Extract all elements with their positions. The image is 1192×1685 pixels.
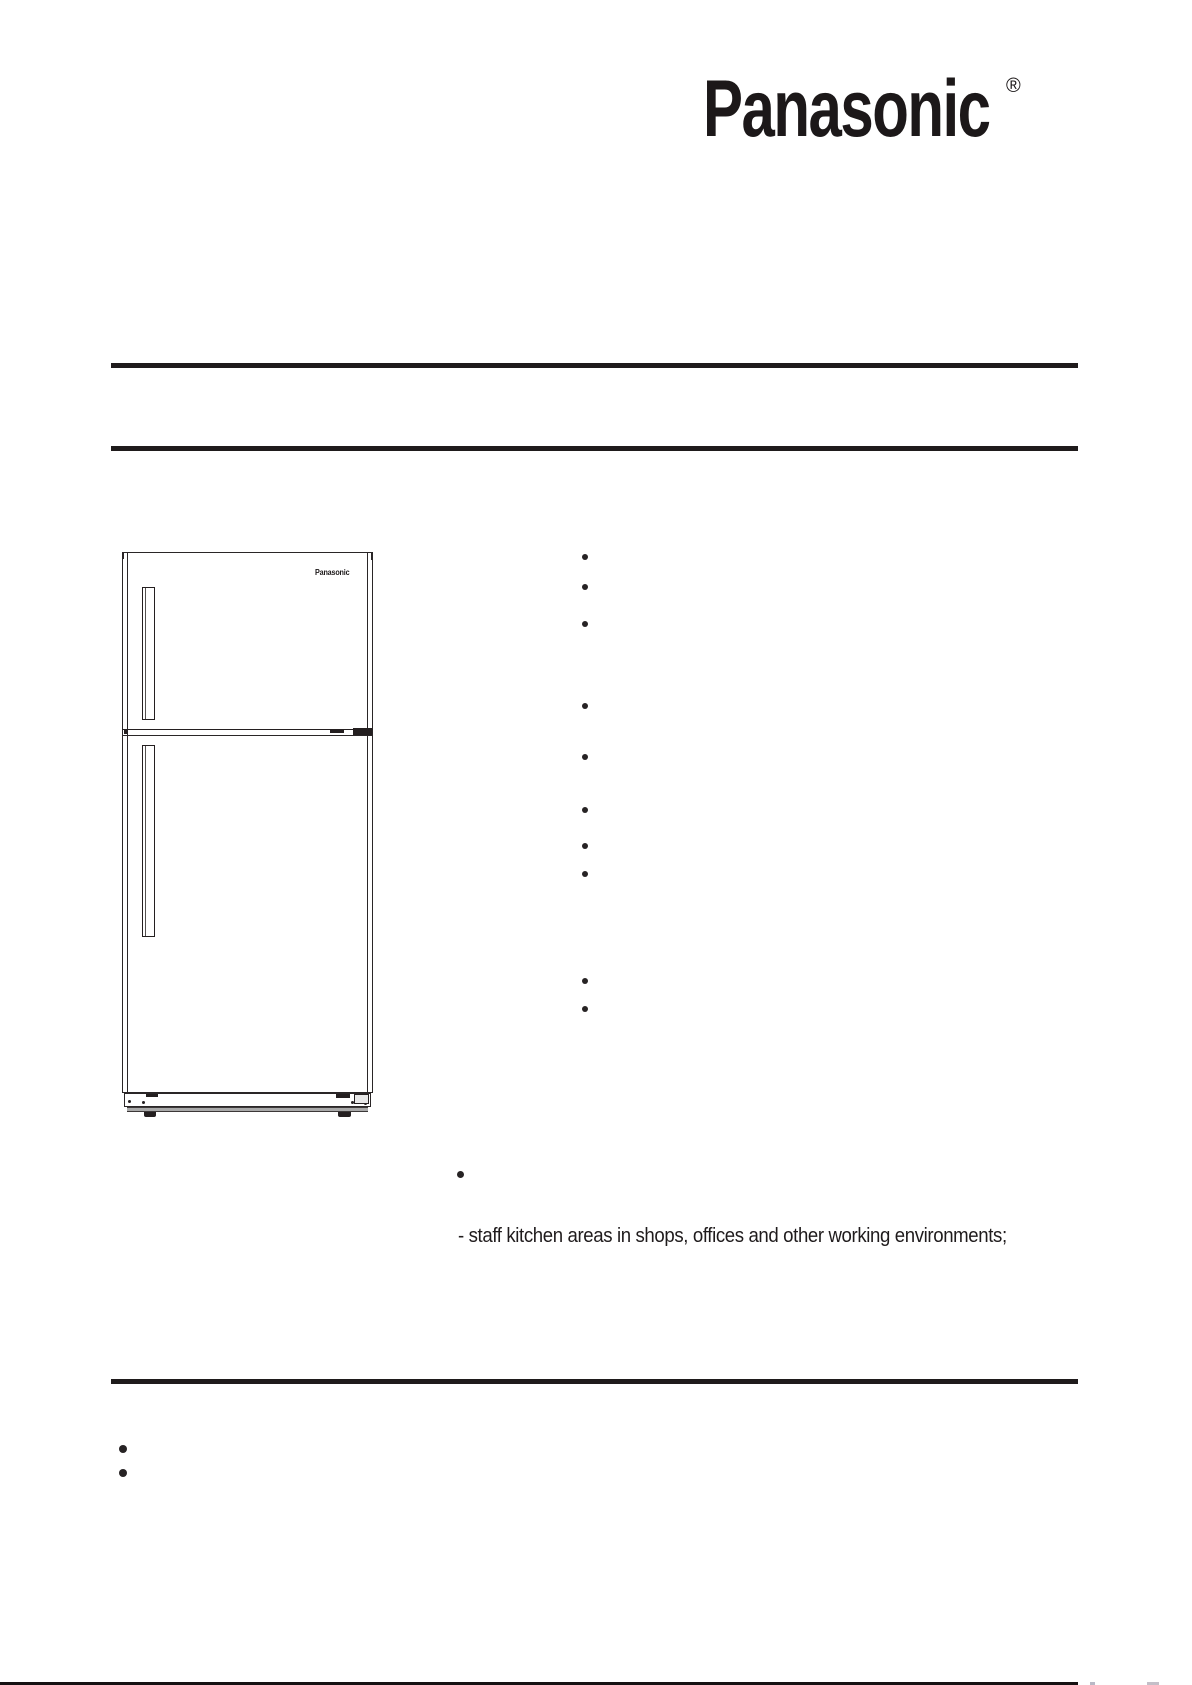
bullet-icon <box>582 843 588 849</box>
base-screw <box>128 1100 131 1103</box>
base-hinge-detail <box>336 1094 350 1098</box>
kick-strip <box>127 1107 368 1112</box>
handle-inner-line <box>145 588 146 719</box>
section-rule-bottom <box>111 1379 1078 1384</box>
cabinet-side-line-left <box>127 552 128 1093</box>
bullet-icon <box>457 1171 464 1178</box>
base-hinge-bracket <box>354 1094 369 1104</box>
registered-trademark-icon: ® <box>1006 76 1021 96</box>
panasonic-logo: Panasonic <box>703 69 990 150</box>
bullet-icon <box>582 807 588 813</box>
bullet-icon <box>582 871 588 877</box>
top-right-hinge-tick <box>371 553 373 560</box>
cabinet-outline <box>122 552 373 1093</box>
bullet-icon <box>119 1469 127 1477</box>
bullet-icon <box>119 1445 127 1453</box>
base-screw <box>142 1101 145 1104</box>
door-divider-line <box>122 735 373 736</box>
manual-page: Panasonic ® Panasonic <box>0 0 1192 1685</box>
bullet-icon <box>582 621 588 627</box>
title-rule-bottom <box>111 446 1078 451</box>
base-detail-left <box>146 1094 158 1097</box>
fridge-brand-label: Panasonic <box>315 568 349 577</box>
refrigerator-door-handle <box>142 745 155 937</box>
bullet-icon <box>582 978 588 984</box>
cabinet-side-line-right <box>367 552 368 1093</box>
refrigerator-illustration: Panasonic <box>122 552 373 1118</box>
divider-hinge-block <box>353 728 372 735</box>
divider-detail-left <box>124 730 128 734</box>
freezer-door-handle <box>142 587 155 720</box>
bullet-icon <box>582 554 588 560</box>
right-foot <box>338 1112 351 1117</box>
divider-hinge-detail <box>330 730 344 733</box>
bullet-icon <box>582 754 588 760</box>
usage-note-text: - staff kitchen areas in shops, offices … <box>458 1225 1007 1248</box>
left-foot <box>144 1112 156 1117</box>
bullet-icon <box>582 1006 588 1012</box>
top-left-hinge-tick <box>122 552 124 559</box>
bullet-icon <box>582 703 588 709</box>
handle-inner-line <box>145 746 146 936</box>
bullet-icon <box>582 584 588 590</box>
base-plate <box>124 1093 371 1107</box>
title-rule-top <box>111 363 1078 368</box>
